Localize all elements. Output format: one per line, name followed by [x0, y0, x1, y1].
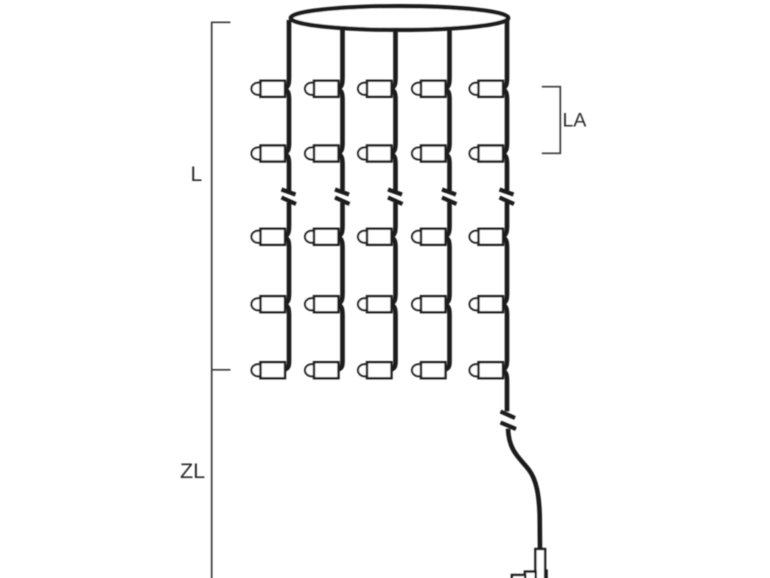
svg-text:ZL: ZL	[180, 459, 205, 483]
svg-text:L: L	[191, 163, 203, 186]
svg-text:LA: LA	[563, 110, 587, 132]
